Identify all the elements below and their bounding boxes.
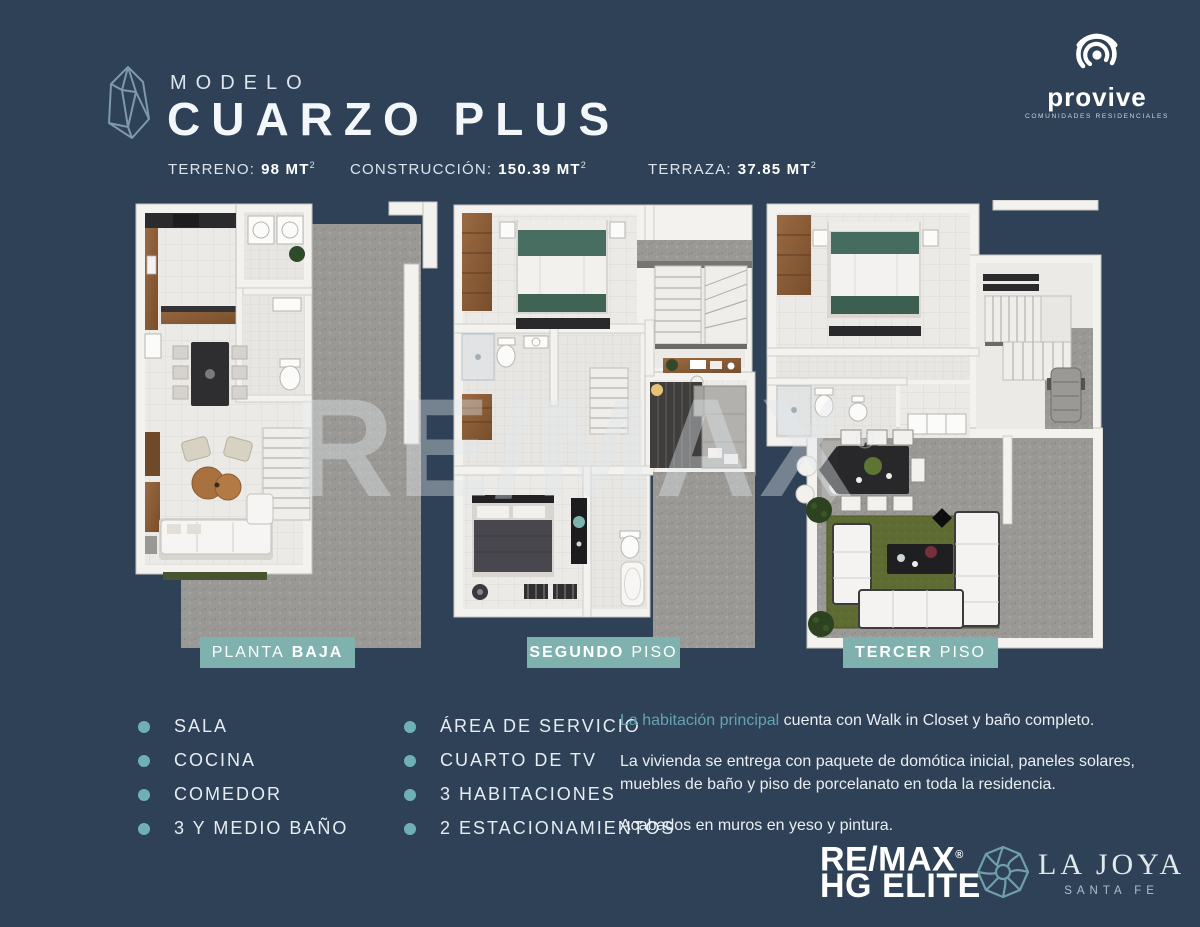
- bullet-icon: [138, 789, 150, 801]
- powder-bath: [236, 288, 312, 402]
- feature-label: ÁREA DE SERVICIO: [440, 716, 641, 737]
- spec-label: TERRAZA:: [648, 161, 732, 178]
- badge-word: SEGUNDO: [529, 644, 624, 662]
- spec-sup: 2: [811, 160, 817, 170]
- specs-row: TERRENO:98 MT2 CONSTRUCCIÓN:150.39 MT2 T…: [168, 160, 817, 178]
- spec-value: 37.85 MT: [738, 161, 811, 178]
- floor-plan-planta-baja: [133, 196, 440, 656]
- vanity-strip: [571, 498, 587, 564]
- tv-room: [650, 382, 746, 468]
- terrace-lounge: [806, 497, 999, 637]
- lajoya-gem-icon: [975, 844, 1031, 900]
- bullet-icon: [138, 823, 150, 835]
- feature-label: 3 HABITACIONES: [440, 784, 616, 805]
- registered-mark: ®: [955, 849, 964, 861]
- badge-word: PISO: [940, 644, 986, 662]
- feature-label: 3 Y MEDIO BAÑO: [174, 818, 348, 839]
- bullet-icon: [404, 789, 416, 801]
- description-notes: La habitación principal cuenta con Walk …: [620, 710, 1145, 857]
- note-paragraph: La vivienda se entrega con paquete de do…: [620, 751, 1145, 796]
- spec-value: 98 MT: [261, 161, 310, 178]
- feature-label: CUARTO DE TV: [440, 750, 597, 771]
- remax-sub-text: HG ELITE: [820, 873, 981, 900]
- feature-label: COMEDOR: [174, 784, 282, 805]
- bullet-icon: [404, 721, 416, 733]
- spec-terreno: TERRENO:98 MT2: [168, 160, 350, 178]
- flyer-canvas: MODELO CUARZO PLUS TERRENO:98 MT2 CONSTR…: [0, 0, 1200, 927]
- bullet-icon: [404, 755, 416, 767]
- lajoya-sub-text: SANTA FE: [1038, 885, 1185, 897]
- features-column-1: SALA COCINA COMEDOR 3 Y MEDIO BAÑO: [138, 716, 368, 839]
- lajoya-name-text: LA JOYA: [1038, 848, 1185, 882]
- badge-planta-baja: PLANTABAJA: [200, 637, 355, 668]
- bullet-icon: [138, 755, 150, 767]
- list-item: SALA: [138, 716, 368, 737]
- spec-terraza: TERRAZA:37.85 MT2: [648, 160, 817, 178]
- floor-plan-tercer-piso: [763, 200, 1103, 650]
- floor-plan-segundo-piso: [450, 200, 760, 665]
- badge-word: TERCER: [855, 644, 933, 662]
- list-item: COMEDOR: [138, 784, 368, 805]
- feature-label: SALA: [174, 716, 228, 737]
- dining-area: [173, 342, 247, 406]
- provive-name: provive: [1012, 84, 1182, 110]
- note-paragraph: Acabados en muros en yeso y pintura.: [620, 815, 1145, 837]
- badge-tercer-piso: TERCERPISO: [843, 637, 998, 668]
- note-text: cuenta con Walk in Closet y baño complet…: [779, 712, 1094, 729]
- spec-construccion: CONSTRUCCIÓN:150.39 MT2: [350, 160, 648, 178]
- spec-value: 150.39 MT: [498, 161, 581, 178]
- grill: [1047, 368, 1085, 422]
- bullet-icon: [138, 721, 150, 733]
- model-name: CUARZO PLUS: [167, 92, 620, 146]
- badge-word: PLANTA: [212, 644, 285, 662]
- bullet-icon: [404, 823, 416, 835]
- provive-icon: [1068, 24, 1126, 82]
- badge-word: PISO: [631, 644, 677, 662]
- feature-label: COCINA: [174, 750, 256, 771]
- crystal-logo-icon: [100, 64, 156, 142]
- note-highlight: La habitación principal: [620, 712, 779, 729]
- spec-label: CONSTRUCCIÓN:: [350, 161, 492, 178]
- badge-word: BAJA: [292, 644, 344, 662]
- doormat: [163, 572, 267, 580]
- spec-sup: 2: [310, 160, 316, 170]
- badge-segundo-piso: SEGUNDOPISO: [527, 637, 680, 668]
- features-list: SALA COCINA COMEDOR 3 Y MEDIO BAÑO ÁREA …: [138, 716, 675, 839]
- provive-logo: provive COMUNIDADES RESIDENCIALES: [1012, 24, 1182, 120]
- spec-sup: 2: [581, 160, 587, 170]
- concrete-ledge: [637, 240, 752, 268]
- list-item: COCINA: [138, 750, 368, 771]
- provive-tagline: COMUNIDADES RESIDENCIALES: [1012, 113, 1182, 120]
- remax-hg-elite-logo: RE/MAX® HG ELITE: [820, 842, 981, 900]
- terrace-concrete: [653, 472, 755, 648]
- list-item: 3 Y MEDIO BAÑO: [138, 818, 368, 839]
- stairs-central: [590, 368, 628, 434]
- spec-label: TERRENO:: [168, 161, 255, 178]
- lajoya-logo: LA JOYA SANTA FE: [1038, 848, 1185, 897]
- note-paragraph: La habitación principal cuenta con Walk …: [620, 710, 1145, 732]
- stairs-upper: [655, 266, 747, 349]
